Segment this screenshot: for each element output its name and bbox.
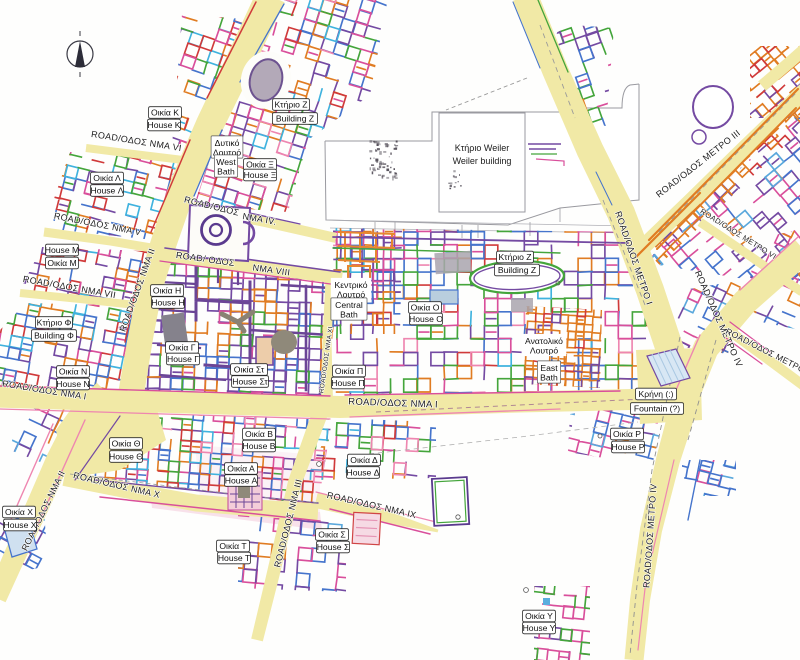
svg-text:Δυτικό: Δυτικό bbox=[215, 138, 240, 148]
svg-text:Οικία Ρ: Οικία Ρ bbox=[613, 429, 641, 439]
svg-text:Οικία Η: Οικία Η bbox=[153, 286, 181, 296]
svg-text:Οικία Γ: Οικία Γ bbox=[169, 343, 196, 353]
svg-text:Λουτρό: Λουτρό bbox=[530, 346, 559, 356]
svg-text:West: West bbox=[216, 157, 236, 167]
svg-text:House Π: House Π bbox=[331, 378, 364, 388]
svg-text:Οικία Ν: Οικία Ν bbox=[59, 367, 87, 377]
svg-text:Οικία Ο: Οικία Ο bbox=[411, 303, 440, 313]
svg-text:House Στ: House Στ bbox=[232, 377, 268, 387]
svg-text:House H: House H bbox=[151, 298, 184, 308]
svg-text:House X: House X bbox=[4, 520, 37, 530]
svg-text:Οικία Δ: Οικία Δ bbox=[350, 455, 378, 465]
svg-text:Οικία Ξ: Οικία Ξ bbox=[246, 160, 274, 170]
svg-text:Οικία Π: Οικία Π bbox=[335, 366, 363, 376]
svg-text:Bath: Bath bbox=[540, 373, 558, 383]
svg-text:Οικία Α: Οικία Α bbox=[227, 464, 255, 474]
svg-text:Οικία Σ: Οικία Σ bbox=[318, 530, 345, 540]
svg-text:House Λ: House Λ bbox=[91, 186, 124, 196]
svg-text:Οικία Χ: Οικία Χ bbox=[5, 507, 33, 517]
svg-text:House Σ: House Σ bbox=[317, 542, 350, 552]
svg-text:Κτήριο Ζ: Κτήριο Ζ bbox=[274, 100, 307, 110]
svg-text:East: East bbox=[540, 363, 558, 373]
svg-text:Building Z: Building Z bbox=[276, 114, 314, 124]
svg-text:Bath: Bath bbox=[217, 167, 235, 177]
svg-text:House T: House T bbox=[218, 553, 251, 563]
svg-text:Οικία Κ: Οικία Κ bbox=[151, 108, 179, 118]
svg-text:House M: House M bbox=[45, 245, 79, 255]
svg-text:House Ξ: House Ξ bbox=[244, 170, 277, 180]
svg-text:House K: House K bbox=[148, 120, 181, 130]
svg-text:House O: House O bbox=[409, 314, 443, 324]
svg-text:Weiler building: Weiler building bbox=[453, 156, 512, 166]
svg-text:Central: Central bbox=[335, 300, 363, 310]
svg-text:Building Φ: Building Φ bbox=[34, 331, 74, 341]
svg-text:Κρήνη (:): Κρήνη (:) bbox=[639, 389, 674, 399]
svg-text:House Y: House Y bbox=[523, 623, 556, 633]
svg-text:Fountain (?): Fountain (?) bbox=[634, 404, 680, 414]
svg-text:Οικία Μ: Οικία Μ bbox=[47, 258, 76, 268]
svg-text:Οικία Στ: Οικία Στ bbox=[234, 365, 265, 375]
svg-text:Οικία Υ: Οικία Υ bbox=[525, 611, 553, 621]
svg-text:Building Z: Building Z bbox=[498, 265, 536, 275]
svg-text:House Γ: House Γ bbox=[167, 354, 199, 364]
svg-text:Οικία Β: Οικία Β bbox=[245, 429, 273, 439]
svg-text:Κτήριο Weiler: Κτήριο Weiler bbox=[455, 143, 510, 153]
svg-text:Bath: Bath bbox=[340, 310, 358, 320]
svg-text:Κτήριο Φ: Κτήριο Φ bbox=[37, 318, 72, 328]
svg-text:House A: House A bbox=[225, 476, 258, 486]
svg-text:Οικία Τ: Οικία Τ bbox=[219, 541, 247, 551]
svg-text:House Δ: House Δ bbox=[347, 468, 380, 478]
svg-text:Κεντρικό: Κεντρικό bbox=[334, 280, 367, 290]
svg-text:Ανατολικό: Ανατολικό bbox=[525, 336, 563, 346]
svg-text:House N: House N bbox=[56, 379, 89, 389]
svg-text:House P: House P bbox=[612, 442, 645, 452]
svg-text:Οικία Θ: Οικία Θ bbox=[112, 439, 141, 449]
svg-text:Κτήριο Ζ: Κτήριο Ζ bbox=[498, 252, 531, 262]
svg-text:House B: House B bbox=[243, 441, 276, 451]
svg-text:Οικία Λ: Οικία Λ bbox=[93, 173, 121, 183]
svg-text:House Θ: House Θ bbox=[109, 452, 143, 462]
